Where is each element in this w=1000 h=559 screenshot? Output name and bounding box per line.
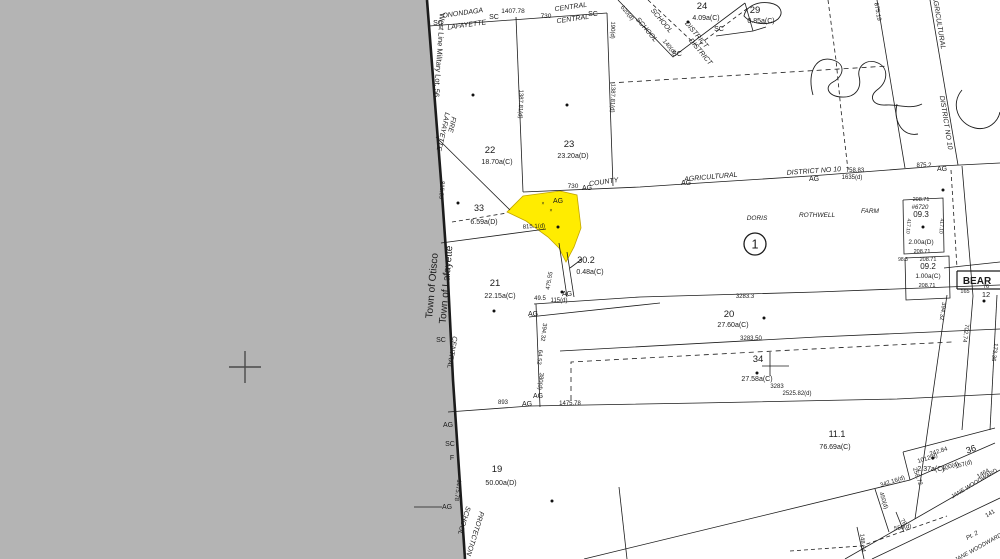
map-label: SC: [588, 11, 598, 18]
map-label: 875.2: [916, 163, 932, 169]
map-label: 64.52: [535, 349, 543, 365]
parcel-boundary-line: [529, 303, 660, 317]
parcel-boundary-line: [610, 66, 888, 83]
parcel-boundary-line: [560, 329, 1000, 351]
parcel-boundary-line: [951, 170, 957, 268]
parcel-number: 12: [982, 290, 990, 299]
map-label: AG: [522, 401, 532, 408]
map-label: F: [450, 455, 454, 462]
map-label: 49.5: [534, 296, 546, 302]
map-label: 1387.81(d): [608, 83, 615, 112]
structure-dot: [551, 500, 554, 503]
parcel-acreage: 4.09a(C): [692, 15, 719, 22]
map-label: 208.71: [913, 197, 930, 203]
map-label: SC: [445, 441, 455, 448]
parcel-number: 30.2: [577, 255, 595, 265]
stream-line: [811, 59, 922, 107]
structure-dot: [756, 372, 759, 375]
parcel-boundary-line: [962, 166, 973, 430]
parcel-number: 23: [564, 139, 575, 150]
map-label: SC: [436, 337, 446, 344]
map-label: SC: [433, 20, 443, 27]
map-label: 758.83: [846, 168, 865, 174]
map-label: CENTRAL: [554, 2, 587, 13]
parcel-number: 24: [697, 1, 708, 12]
structure-dot: [763, 317, 766, 320]
map-label: 98.3: [898, 257, 908, 263]
structure-dot: [566, 104, 569, 107]
map-label: AG: [528, 311, 538, 318]
school-district-line: [618, 0, 745, 57]
parcel-number: 22: [485, 145, 496, 156]
map-viewport[interactable]: ××1West Line Military Lot. 56SCONONDAGAL…: [0, 0, 1000, 559]
map-label: 815.1(d): [523, 223, 546, 230]
parcel-number: 09.2: [920, 262, 936, 271]
map-label: 1635(d): [842, 175, 863, 181]
map-label: Pt. 2: [965, 529, 980, 542]
map-label: 417.10: [937, 218, 944, 234]
map-label: SCHOOL: [634, 16, 658, 43]
map-label: 550(d): [894, 524, 912, 533]
map-label: 190(d): [609, 21, 616, 39]
parcel-boundary-line: [571, 342, 952, 400]
map-label: 3283.50: [740, 336, 762, 342]
map-label: 3283.3: [736, 294, 755, 300]
structure-dot: [983, 300, 986, 303]
map-label: JANE WOODWARD: [949, 468, 998, 501]
map-label: 1407.78: [501, 8, 525, 15]
parcel-acreage: 1.00a(C): [915, 273, 940, 280]
map-label: 1387.81(d): [516, 89, 523, 118]
map-label: SC: [672, 51, 682, 58]
parcel-number: 11.1: [829, 429, 846, 439]
parcel-acreage: 27.58a(C): [741, 376, 772, 383]
parcel-acreage: 50.00a(D): [485, 480, 516, 487]
stream-line: [896, 104, 918, 134]
road-edge-line: [915, 295, 947, 519]
structure-dot: [557, 226, 560, 229]
map-label: 173.36: [990, 343, 999, 363]
structure-dot: [493, 310, 496, 313]
parcel-boundary-line: [944, 262, 1000, 268]
parcel-map-svg[interactable]: ××1West Line Military Lot. 56SCONONDAGAL…: [0, 0, 1000, 559]
map-label: 417.10: [904, 218, 911, 234]
parcel-acreage: 2.00a(D): [908, 239, 933, 246]
parcel-number: 33: [474, 203, 484, 213]
map-label: AG: [442, 504, 452, 511]
parcel-acreage: 76.69a(C): [819, 444, 850, 451]
map-label: 242.84: [929, 446, 949, 457]
map-label: 208.71: [919, 283, 936, 289]
map-label: 394.32: [938, 302, 947, 322]
map-label: 730: [568, 183, 579, 190]
parcel-number: 34: [753, 354, 764, 365]
map-label: AG: [443, 422, 453, 429]
map-label: ROTHWELL: [799, 212, 836, 219]
structure-dot: [942, 189, 945, 192]
map-label: DORIS: [747, 215, 768, 222]
map-label: FARM: [861, 208, 880, 215]
structure-dot: [457, 202, 460, 205]
stream-line: [956, 90, 1000, 129]
map-label: 620(d): [619, 5, 635, 22]
parcel-boundary-line: [436, 137, 510, 210]
map-label: AG: [937, 166, 947, 173]
map-label: 141: [985, 509, 997, 520]
parcel-acreage: 27.60a(C): [717, 322, 748, 329]
parcel-boundary-line: [903, 428, 995, 452]
parcel-boundary-line: [877, 0, 905, 168]
parcel-number: 29: [750, 5, 761, 16]
map-label: AG: [553, 198, 563, 205]
parcel-acreage: 23.20a(D): [557, 153, 588, 160]
map-label: COUNTY: [589, 177, 621, 188]
map-label: 730: [541, 13, 552, 20]
parcel-acreage: 18.70a(C): [481, 159, 512, 166]
survey-x-mark: ×: [542, 201, 545, 207]
parcel-boundary-line: [441, 229, 546, 243]
parcel-acreage: 0.48a(C): [576, 269, 603, 276]
parcel-boundary-line: [619, 487, 627, 559]
district-number: 1: [752, 238, 759, 252]
parcel-acreage: 6.59a(D): [470, 219, 497, 226]
map-label: 1475.78: [559, 401, 581, 407]
map-label: AG: [809, 176, 819, 183]
out-of-town-area: [0, 0, 465, 559]
map-label: AGRICULTURAL: [931, 0, 946, 50]
parcel-number: 20: [724, 309, 735, 320]
parcel-number: 21: [490, 278, 501, 289]
map-label: 394.32: [539, 323, 547, 343]
parcel-number: 19: [492, 464, 503, 475]
map-label: SC: [714, 26, 724, 33]
map-label: 148.84: [858, 534, 866, 553]
map-label: 2525.82(d): [782, 391, 811, 397]
map-label: 475.55: [545, 271, 554, 291]
map-label: 702.74: [961, 324, 970, 344]
map-label: 3283: [770, 384, 784, 390]
map-label: AG: [562, 291, 572, 298]
parcel-number: 09.3: [913, 210, 929, 219]
parcel-number: 36: [965, 443, 978, 456]
survey-x-mark: ×: [550, 208, 553, 214]
parcel-boundary-line: [828, 0, 848, 170]
map-label: SC: [489, 14, 499, 21]
map-label: 165: [960, 289, 969, 295]
map-label: LAFAYETTE: [447, 19, 487, 31]
map-label: 893: [498, 400, 509, 406]
map-label: CENTRAL: [556, 14, 589, 25]
structure-dot: [472, 94, 475, 97]
parcel-acreage: 22.15a(C): [484, 293, 515, 300]
structure-dot: [922, 226, 925, 229]
map-label: AGRICULTURAL: [683, 172, 738, 184]
map-label: 380(d): [536, 372, 544, 390]
parcel-acreage: 0.85a(C): [747, 18, 774, 25]
map-label: 875.19: [872, 2, 881, 22]
map-label: 115(d): [551, 298, 568, 304]
map-label: 342.16(d): [880, 475, 906, 489]
map-label: AG: [533, 393, 543, 400]
parcel-acreage: 2.37a(C): [917, 466, 944, 473]
map-label: ONONDAGA: [442, 7, 484, 20]
parcel-boundary-line: [990, 295, 997, 430]
map-label: 208.71: [914, 249, 931, 255]
agricultural-district-line: [930, 0, 958, 165]
map-label: SCHOOL: [649, 7, 673, 34]
